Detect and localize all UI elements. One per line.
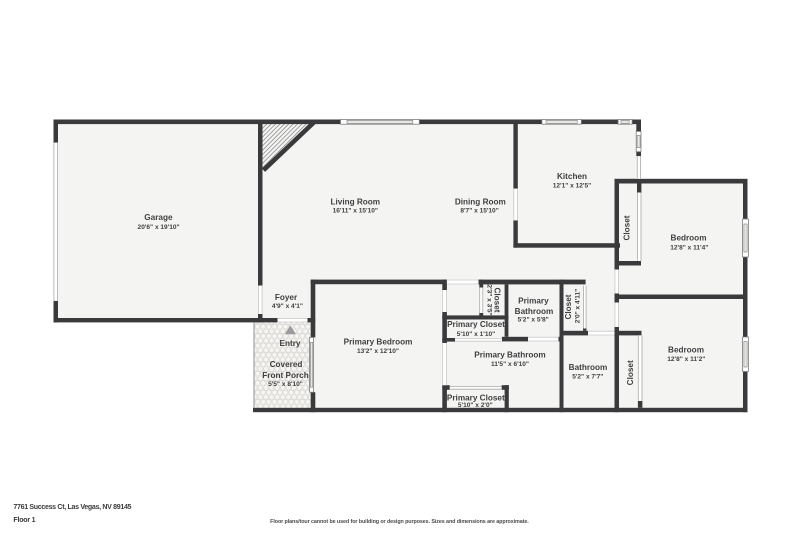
svg-text:5'10" x 1'10": 5'10" x 1'10" <box>457 331 495 338</box>
svg-text:12'8" x 11'4": 12'8" x 11'4" <box>670 245 708 252</box>
svg-text:Closet: Closet <box>564 294 573 319</box>
svg-text:5'5" x 8'10": 5'5" x 8'10" <box>268 381 303 388</box>
svg-text:5'2" x 5'8": 5'2" x 5'8" <box>518 316 549 323</box>
svg-text:Primary Closet: Primary Closet <box>447 320 505 329</box>
svg-text:Floor 1: Floor 1 <box>13 517 35 524</box>
svg-text:4'9" x 4'1": 4'9" x 4'1" <box>272 303 303 310</box>
svg-text:12'8" x 11'2": 12'8" x 11'2" <box>667 356 705 363</box>
svg-text:Primary Closet: Primary Closet <box>447 393 505 402</box>
svg-text:8'7" x 15'10": 8'7" x 15'10" <box>460 207 498 214</box>
svg-text:5'10" x 2'0": 5'10" x 2'0" <box>458 402 493 409</box>
svg-text:Front Porch: Front Porch <box>262 371 308 380</box>
svg-text:Primary Bathroom: Primary Bathroom <box>474 351 545 360</box>
svg-text:Bedroom: Bedroom <box>671 233 707 242</box>
svg-text:16'11" x 15'10": 16'11" x 15'10" <box>333 207 378 214</box>
svg-text:Bedroom: Bedroom <box>668 346 704 355</box>
svg-text:20'6" x 19'10": 20'6" x 19'10" <box>138 224 180 231</box>
svg-text:Garage: Garage <box>144 213 173 222</box>
svg-text:Primary Bedroom: Primary Bedroom <box>344 337 413 346</box>
svg-text:Closet: Closet <box>623 215 632 240</box>
svg-text:Bathroom: Bathroom <box>515 307 554 316</box>
svg-text:11'5" x 6'10": 11'5" x 6'10" <box>491 361 529 368</box>
svg-text:Entry: Entry <box>280 339 301 348</box>
svg-text:13'2" x 12'10": 13'2" x 12'10" <box>357 348 399 355</box>
svg-text:Closet: Closet <box>626 360 635 385</box>
svg-text:5'2" x 7'7": 5'2" x 7'7" <box>572 373 603 380</box>
svg-text:Dining Room: Dining Room <box>455 198 506 207</box>
svg-text:Kitchen: Kitchen <box>557 172 587 181</box>
svg-text:Living Room: Living Room <box>331 198 381 207</box>
svg-text:12'1" x 12'5": 12'1" x 12'5" <box>553 182 591 189</box>
svg-text:Foyer: Foyer <box>275 293 298 302</box>
svg-text:Primary: Primary <box>518 296 549 305</box>
svg-text:2'0" x 4'11": 2'0" x 4'11" <box>575 289 582 323</box>
svg-text:Closet: Closet <box>492 287 501 312</box>
svg-text:Bathroom: Bathroom <box>569 363 608 372</box>
svg-text:Covered: Covered <box>270 360 303 369</box>
svg-text:2'3" x 3'5": 2'3" x 3'5" <box>486 284 493 315</box>
svg-text:7761 Success Ct, Las Vegas, NV: 7761 Success Ct, Las Vegas, NV 89145 <box>13 504 131 511</box>
svg-text:Floor plans/tour cannot be use: Floor plans/tour cannot be used for buil… <box>270 519 529 525</box>
